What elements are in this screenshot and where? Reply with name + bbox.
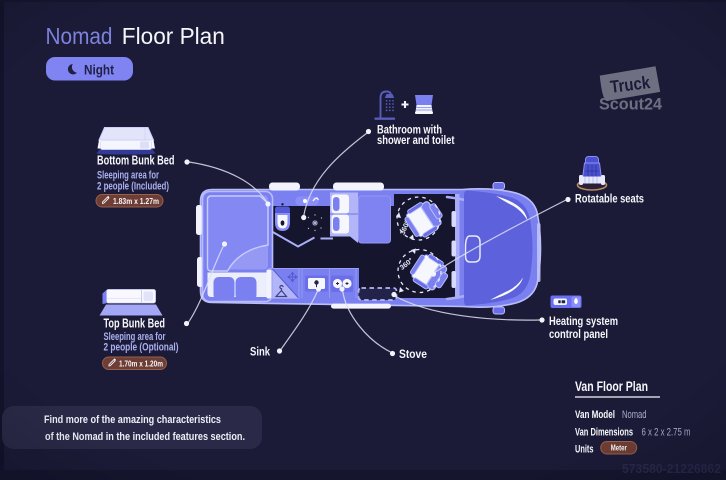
svg-text:Meter: Meter — [611, 443, 627, 452]
svg-text:1.83m x 1.27m: 1.83m x 1.27m — [113, 196, 159, 206]
svg-text:Van Dimensions: Van Dimensions — [575, 427, 633, 439]
svg-text:control panel: control panel — [549, 329, 608, 341]
svg-text:Van Model: Van Model — [575, 409, 615, 421]
svg-text:Find more of the amazing chara: Find more of the amazing characteristics — [44, 414, 221, 426]
svg-text:Units: Units — [575, 444, 594, 456]
svg-text:Sink: Sink — [250, 347, 270, 359]
svg-text:Top Bunk Bed: Top Bunk Bed — [104, 316, 166, 331]
svg-text:of the Nomad in the included f: of the Nomad in the included features se… — [45, 431, 245, 443]
svg-text:Stove: Stove — [399, 349, 427, 361]
svg-text:Floor Plan: Floor Plan — [122, 23, 225, 49]
svg-text:Van Floor Plan: Van Floor Plan — [575, 379, 648, 394]
svg-text:573580-21226862: 573580-21226862 — [622, 462, 721, 476]
svg-text:shower and toilet: shower and toilet — [377, 135, 455, 147]
svg-text:Scout24: Scout24 — [599, 95, 663, 114]
svg-text:Bottom Bunk Bed: Bottom Bunk Bed — [97, 153, 175, 168]
svg-text:2 people (Included): 2 people (Included) — [97, 181, 169, 193]
svg-text:Rotatable seats: Rotatable seats — [575, 194, 644, 206]
svg-text:1.70m x 1.20m: 1.70m x 1.20m — [119, 358, 163, 368]
svg-text:Night: Night — [84, 63, 114, 78]
svg-text:Heating system: Heating system — [549, 316, 618, 328]
svg-text:2 people (Optional): 2 people (Optional) — [104, 342, 179, 354]
svg-text:Nomad: Nomad — [46, 23, 113, 49]
svg-text:Nomad: Nomad — [622, 409, 647, 421]
svg-text:6 x 2 x 2.75 m: 6 x 2 x 2.75 m — [642, 427, 691, 439]
